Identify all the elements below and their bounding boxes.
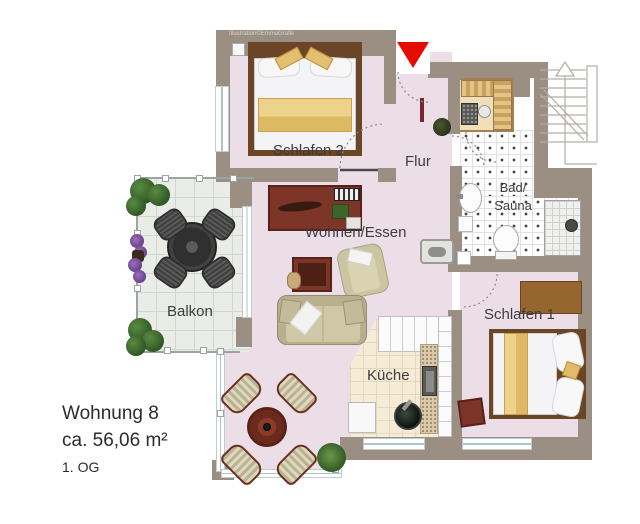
door-swings: [340, 72, 497, 307]
label-schlafen2: Schlafen 2: [273, 142, 344, 159]
door-arc-bedroom1: [464, 274, 497, 307]
door-arc-sauna: [466, 132, 496, 162]
label-bad-sauna: Bad/ Sauna: [486, 179, 540, 214]
door-arc-bath: [452, 136, 484, 168]
floor-plan: Illustration©EmmaGrafik Schlafen 2 Flur …: [0, 0, 640, 524]
door-arc-entrance: [398, 72, 428, 102]
label-bad-line1: Bad/: [486, 179, 540, 197]
staircase: [540, 62, 597, 164]
label-wohnen-essen: Wohnen/Essen: [305, 224, 406, 241]
label-flur: Flur: [405, 153, 431, 170]
apartment-area: ca. 56,06 m²: [62, 430, 168, 452]
apartment-floor: 1. OG: [62, 459, 99, 475]
entrance-marker-triangle: [397, 42, 429, 68]
label-kueche: Küche: [367, 367, 410, 384]
label-balkon: Balkon: [167, 303, 213, 320]
door-arc-bedroom2: [340, 124, 384, 168]
label-sauna-line2: Sauna: [486, 197, 540, 215]
watermark: Illustration©EmmaGrafik: [229, 31, 294, 37]
label-schlafen1: Schlafen 1: [484, 306, 555, 323]
apartment-title: Wohnung 8: [62, 403, 159, 425]
